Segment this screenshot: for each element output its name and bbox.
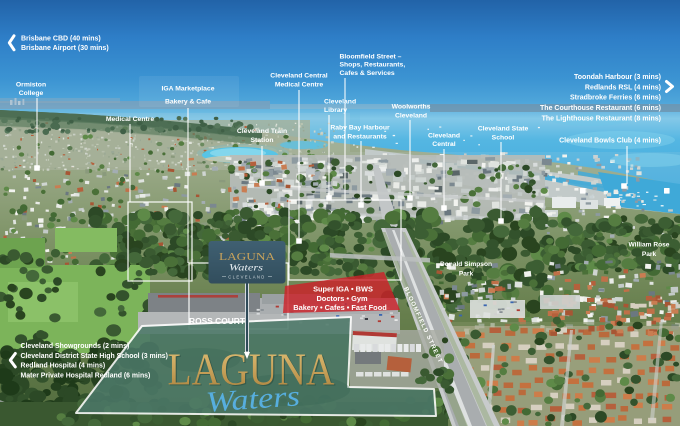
- svg-text:CLEVELAND: CLEVELAND: [228, 275, 266, 280]
- svg-text:Raby Bay Harbour: Raby Bay Harbour: [330, 125, 390, 132]
- svg-text:Station: Station: [250, 137, 273, 144]
- svg-text:Park: Park: [642, 251, 657, 258]
- svg-text:Super IGA • BWS: Super IGA • BWS: [313, 285, 373, 294]
- svg-text:Medical Centre: Medical Centre: [275, 81, 324, 88]
- svg-text:Cleveland Showgrounds (2 mins): Cleveland Showgrounds (2 mins): [21, 343, 130, 350]
- svg-text:Library: Library: [324, 107, 347, 114]
- svg-text:Cleveland State: Cleveland State: [478, 126, 529, 133]
- svg-text:Cleveland: Cleveland: [395, 112, 427, 119]
- svg-text:Cleveland Central: Cleveland Central: [270, 73, 328, 80]
- svg-text:Bakery & Cafe: Bakery & Cafe: [165, 99, 211, 106]
- svg-text:Waters: Waters: [205, 380, 301, 418]
- svg-text:Cleveland: Cleveland: [324, 99, 356, 106]
- svg-text:LAGUNA: LAGUNA: [219, 252, 276, 263]
- svg-text:Bloomfield Street –: Bloomfield Street –: [340, 54, 402, 61]
- svg-text:Mater Private Hospital Redland: Mater Private Hospital Redland (6 mins): [21, 372, 151, 379]
- svg-text:Brisbane CBD (40 mins): Brisbane CBD (40 mins): [21, 35, 101, 42]
- svg-text:Bakery • Cafes • Fast Food: Bakery • Cafes • Fast Food: [293, 303, 387, 312]
- svg-text:Ormiston: Ormiston: [16, 82, 46, 89]
- svg-text:IGA Marketplace: IGA Marketplace: [161, 86, 214, 93]
- svg-text:Shops, Restaurants,: Shops, Restaurants,: [340, 62, 406, 69]
- svg-text:Cleveland Bowls Club (4 mins): Cleveland Bowls Club (4 mins): [559, 138, 661, 145]
- svg-text:Redlands RSL (4 mins): Redlands RSL (4 mins): [585, 84, 661, 91]
- svg-text:Stradbroke Ferries (6 mins): Stradbroke Ferries (6 mins): [570, 95, 661, 102]
- svg-text:Toondah Harbour (3 mins): Toondah Harbour (3 mins): [574, 74, 661, 81]
- svg-text:and Restaurants: and Restaurants: [333, 133, 386, 140]
- svg-text:Cafes & Services: Cafes & Services: [340, 70, 395, 77]
- svg-text:William Rose: William Rose: [629, 242, 670, 249]
- svg-text:The Courthouse Restaurant (6 m: The Courthouse Restaurant (6 mins): [540, 105, 661, 112]
- svg-text:College: College: [19, 90, 44, 97]
- svg-text:Central: Central: [432, 141, 456, 148]
- svg-text:Cleveland Train: Cleveland Train: [237, 128, 287, 135]
- svg-text:Doctors • Gym: Doctors • Gym: [316, 294, 367, 303]
- svg-text:School: School: [492, 134, 515, 141]
- svg-text:Brisbane Airport (30 mins): Brisbane Airport (30 mins): [21, 45, 109, 52]
- svg-text:Woolworths: Woolworths: [392, 104, 431, 111]
- svg-text:The Lighthouse Restaurant (8 m: The Lighthouse Restaurant (8 mins): [542, 115, 661, 122]
- svg-text:Medical Centre: Medical Centre: [106, 116, 155, 123]
- svg-text:Cleveland District State High: Cleveland District State High School (3 …: [21, 353, 168, 360]
- svg-text:Donald Simpson: Donald Simpson: [440, 261, 492, 268]
- svg-text:Park: Park: [459, 271, 474, 278]
- svg-text:Waters: Waters: [229, 263, 264, 273]
- svg-text:Cleveland: Cleveland: [428, 132, 460, 139]
- svg-text:Redland Hospital (4 mins): Redland Hospital (4 mins): [21, 363, 106, 370]
- svg-text:ROSS COURT: ROSS COURT: [189, 317, 245, 326]
